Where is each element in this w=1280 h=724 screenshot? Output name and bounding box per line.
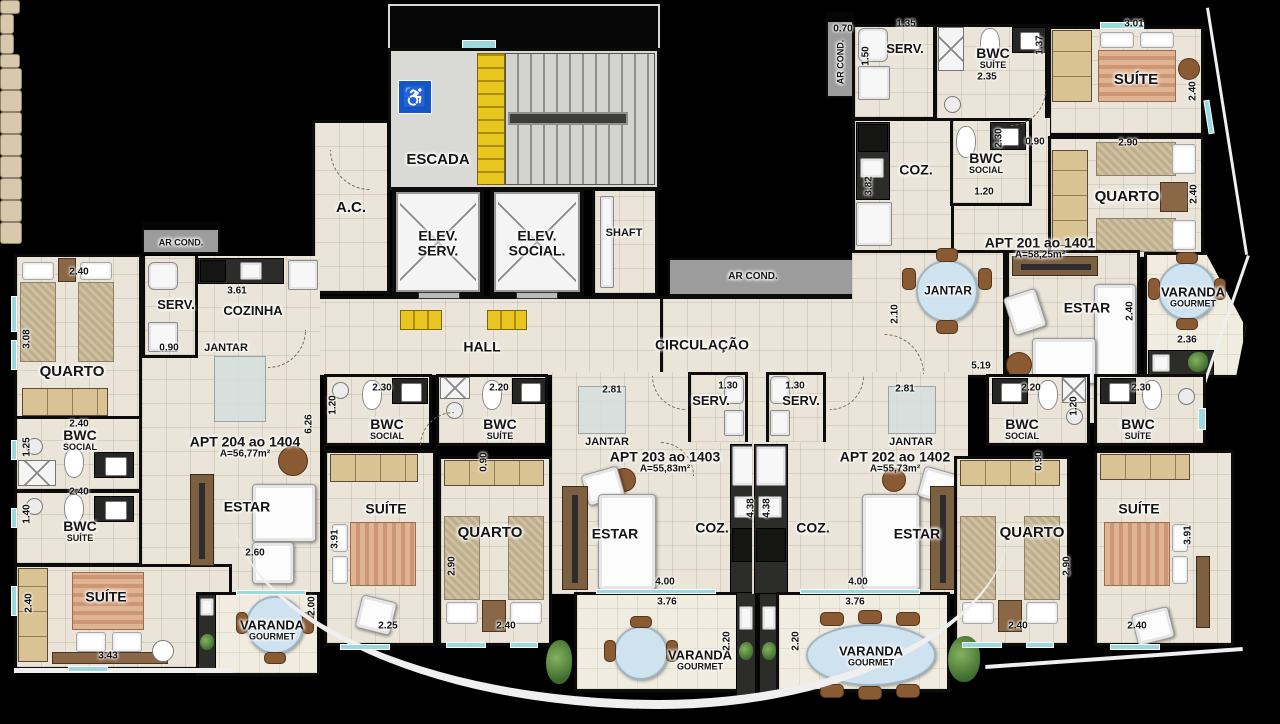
bed-pillow (22, 262, 54, 280)
floor-plan: ♿ (0, 0, 1280, 724)
a202-serv-label: SERV. (782, 394, 820, 408)
washer (770, 410, 790, 436)
chair (936, 248, 958, 262)
stove (858, 124, 888, 152)
dim-label: 2.40 (1125, 301, 1136, 320)
chair (858, 686, 882, 700)
vanity (94, 452, 134, 478)
kitchen-sink (240, 262, 262, 280)
bed-pillow (1172, 144, 1196, 174)
glass-rail (596, 589, 716, 594)
dim-label: 2.90 (1118, 138, 1137, 149)
dim-label: 2.40 (1189, 184, 1200, 203)
hall-label: HALL (463, 340, 500, 355)
a202-bwc-suite-label: BWCSUÍTE (1121, 417, 1154, 441)
dim-label: 3.91 (330, 529, 341, 548)
chair (0, 68, 22, 90)
dim-label: 2.00 (307, 596, 318, 615)
a203-name-label: APT 203 ao 1403A=55,83m² (610, 449, 721, 474)
tactile-pad (487, 310, 527, 330)
plant (200, 634, 214, 650)
a201-coz-label: COZ. (899, 163, 932, 178)
a203-quarto-label: QUARTO (458, 525, 523, 541)
wardrobe (18, 568, 48, 662)
facade-edge (14, 668, 232, 673)
arcond-left-label: AR COND. (159, 238, 204, 247)
dim-label: 2.40 (1127, 621, 1146, 632)
dim-label: 3.91 (1183, 525, 1194, 544)
washer (858, 66, 890, 100)
bed-pillow (1026, 602, 1058, 624)
dim-label: 1.30 (718, 381, 737, 392)
double-bed (1104, 522, 1170, 586)
wheelchair-icon: ♿ (398, 80, 432, 114)
dim-label: 2.30 (1131, 383, 1150, 394)
toilet (1038, 380, 1058, 410)
wardrobe (22, 388, 108, 416)
varanda-sink (1152, 354, 1170, 372)
bed-pillow (1172, 556, 1188, 584)
chair (978, 268, 992, 290)
shower (18, 460, 56, 486)
stair-top-wall (388, 4, 660, 52)
dim-label: 2.40 (69, 419, 88, 430)
dim-label: 2.30 (372, 383, 391, 394)
dim-label: 2.10 (890, 304, 901, 323)
stove (200, 260, 226, 282)
dim-label: 2.20 (791, 631, 802, 650)
laundry-sink (148, 262, 178, 290)
chair (0, 156, 22, 178)
a203-estar-label: ESTAR (592, 527, 638, 542)
wardrobe (330, 454, 418, 482)
a202-coz-label: COZ. (796, 521, 829, 536)
window (446, 642, 486, 648)
fridge (756, 446, 786, 486)
a202-jantar-label: JANTAR (889, 437, 933, 449)
a203-coz-label: COZ. (695, 521, 728, 536)
a201-bwc-suite-label: BWCSUÍTE (976, 46, 1009, 70)
varanda-sink (200, 598, 214, 616)
chair (264, 652, 286, 664)
tv-panel (190, 474, 214, 566)
a204-jantar-label: JANTAR (204, 343, 248, 355)
dim-label: 2.36 (1177, 335, 1196, 346)
a204-estar-label: ESTAR (224, 500, 270, 515)
bed-pillow (1100, 32, 1134, 48)
dim-label: 2.40 (496, 621, 515, 632)
dim-label: 2.20 (1021, 383, 1040, 394)
dim-label: 2.90 (447, 556, 458, 575)
elev-social-label: ELEV.SOCIAL. (509, 228, 566, 257)
a203-suite-label: SUÍTE (365, 502, 406, 517)
chair (0, 134, 22, 156)
wardrobe (960, 460, 1060, 486)
dim-label: 3.76 (657, 597, 676, 608)
bed-pillow (76, 632, 106, 652)
bench (1196, 556, 1210, 628)
dim-label: 3.61 (227, 286, 246, 297)
dim-label: 2.20 (722, 631, 733, 650)
dining-table (214, 356, 266, 422)
nightstand (1160, 182, 1188, 212)
shower (938, 27, 964, 71)
a202-estar-label: ESTAR (894, 527, 940, 542)
chair (0, 0, 20, 14)
dim-label: 1.30 (785, 381, 804, 392)
a201-varanda-label: VARANDAGOURMET (1161, 285, 1225, 308)
wardrobe (1100, 454, 1190, 480)
wardrobe (444, 460, 544, 486)
dim-label: 4.00 (655, 577, 674, 588)
plant (1188, 352, 1208, 372)
a201-name-label: APT 201 ao 1401A=58,25m² (985, 235, 1096, 260)
fridge (856, 202, 892, 246)
a202-suite-label: SUÍTE (1118, 502, 1159, 517)
dim-label: 2.81 (602, 385, 621, 396)
a202-name-label: APT 202 ao 1402A=55,73m² (840, 449, 951, 474)
chair (0, 178, 22, 200)
elevator-door (418, 292, 460, 299)
chair (0, 54, 20, 68)
a201-estar-label: ESTAR (1064, 301, 1110, 316)
window (11, 340, 17, 370)
a203-jantar-label: JANTAR (585, 437, 629, 449)
dim-label: 4.38 (762, 498, 773, 517)
a201-serv-label: SERV. (886, 42, 924, 56)
a203-varanda-label: VARANDAGOURMET (668, 648, 732, 671)
shaft-panel (600, 196, 614, 288)
chair (0, 34, 14, 54)
shaft-label: SHAFT (606, 228, 643, 240)
dim-label: 1.50 (861, 46, 872, 65)
dim-label: 2.35 (977, 72, 996, 83)
dim-label: 2.40 (24, 593, 35, 612)
kitchen-sink (860, 158, 884, 178)
dim-label: 2.30 (994, 128, 1005, 147)
chair (1176, 252, 1198, 264)
single-bed (20, 282, 56, 362)
dim-label: 3.43 (98, 651, 117, 662)
stair-yellow-strip (477, 53, 505, 185)
hall (298, 296, 664, 378)
chair (936, 320, 958, 334)
dim-label: 1.40 (22, 504, 33, 523)
window (11, 296, 17, 332)
a204-bwc-suite-label: BWCSUÍTE (63, 519, 96, 543)
dim-label: 4.00 (848, 577, 867, 588)
a201-quarto-label: QUARTO (1095, 189, 1160, 205)
washer (724, 410, 744, 436)
window (510, 642, 538, 648)
elevator-door (516, 292, 558, 299)
a201-suite-label: SUÍTE (1114, 72, 1158, 88)
facade-edge (985, 647, 1243, 669)
dim-label: 2.40 (1008, 621, 1027, 632)
arcond-mid-label: AR COND. (728, 272, 777, 283)
chair (1176, 318, 1198, 330)
a202-varanda-label: VARANDAGOURMET (839, 644, 903, 667)
dim-label: 1.20 (328, 395, 339, 414)
a202-bwc-social-label: BWCSOCIAL (1005, 417, 1039, 441)
tactile-pad (400, 310, 442, 330)
a204-suite-label: SUÍTE (85, 590, 126, 605)
decor-dish (152, 640, 174, 662)
a204-name-label: APT 204 ao 1404A=56,77m² (190, 434, 301, 459)
window (962, 642, 1002, 648)
dim-label: 4.38 (746, 498, 757, 517)
elev-serv-label: ELEV.SERV. (418, 228, 458, 257)
glass-rail (236, 590, 306, 595)
a202-quarto-label: QUARTO (1000, 525, 1065, 541)
bed-pillow (1172, 220, 1196, 250)
single-bed (78, 282, 114, 362)
wardrobe (1052, 30, 1092, 102)
window (11, 586, 17, 616)
window (1110, 644, 1160, 650)
dim-label: 0.90 (1034, 451, 1045, 470)
circulacao-label: CIRCULAÇÃO (655, 338, 749, 353)
a201-jantar-label: JANTAR (924, 285, 972, 298)
toilet (64, 448, 84, 478)
dim-label: 1.20 (1069, 396, 1080, 415)
dim-label: 2.60 (245, 548, 264, 559)
window (68, 666, 108, 672)
dim-label: 0.90 (479, 452, 490, 471)
dim-label: 3.08 (22, 329, 33, 348)
bed-pillow (112, 632, 142, 652)
window (340, 644, 390, 650)
dim-label: 1.20 (974, 187, 993, 198)
dim-label: 2.40 (69, 267, 88, 278)
glass-rail (800, 589, 920, 594)
dim-label: 2.90 (1062, 556, 1073, 575)
single-bed (1096, 218, 1176, 252)
dim-label: 3.76 (845, 597, 864, 608)
chair (902, 268, 916, 290)
window (11, 440, 17, 460)
pedestal-sink (944, 96, 961, 113)
a204-bwc-social-label: BWCSOCIAL (63, 428, 97, 452)
dim-label: 0.70 (833, 24, 852, 35)
dim-label: 2.20 (489, 383, 508, 394)
dim-label: 1.35 (896, 19, 915, 30)
a201-bwc-social-label: BWCSOCIAL (969, 151, 1003, 175)
a203-bwc-social-label: BWCSOCIAL (370, 417, 404, 441)
a204-quarto-label: QUARTO (40, 364, 105, 380)
stair-handrail (508, 112, 628, 125)
window (1026, 642, 1054, 648)
dim-label: 3.82 (864, 176, 875, 195)
a203-serv-label: SERV. (692, 394, 730, 408)
vanity (94, 496, 134, 522)
dim-label: 0.90 (159, 343, 178, 354)
arcond-201-label: AR COND. (836, 40, 845, 85)
dim-label: 2.25 (378, 621, 397, 632)
dim-label: 1.25 (22, 437, 33, 456)
chair (0, 222, 22, 244)
chair (1148, 278, 1160, 300)
shower (440, 377, 470, 399)
escada-label: ESCADA (406, 152, 469, 168)
a203-bwc-suite-label: BWCSUÍTE (483, 417, 516, 441)
dim-label: 2.40 (69, 487, 88, 498)
window (1198, 408, 1206, 430)
a204-varanda-label: VARANDAGOURMET (240, 618, 304, 641)
vanity (392, 378, 428, 404)
chair (0, 90, 22, 112)
ottoman (1178, 58, 1200, 80)
dim-label: 5.19 (971, 361, 990, 372)
chair (0, 112, 22, 134)
window (1203, 100, 1214, 135)
fridge (288, 260, 318, 290)
dim-label: 2.81 (895, 384, 914, 395)
vanity (512, 378, 546, 404)
chair (896, 684, 920, 698)
dim-label: 0.90 (1025, 137, 1044, 148)
dim-label: 2.40 (1188, 81, 1199, 100)
dim-label: 1.37 (1035, 35, 1046, 54)
wardrobe (1052, 150, 1088, 246)
window (11, 508, 17, 528)
a204-serv-label: SERV. (157, 298, 195, 312)
chair (0, 200, 22, 222)
a204-cozinha-label: COZINHA (223, 304, 282, 318)
dim-label: 6.26 (304, 414, 315, 433)
bed-pillow (1140, 32, 1174, 48)
dim-label: 3.01 (1124, 19, 1143, 30)
pedestal-sink (1178, 388, 1195, 405)
chair (0, 14, 14, 34)
ac-label: A.C. (336, 200, 366, 216)
